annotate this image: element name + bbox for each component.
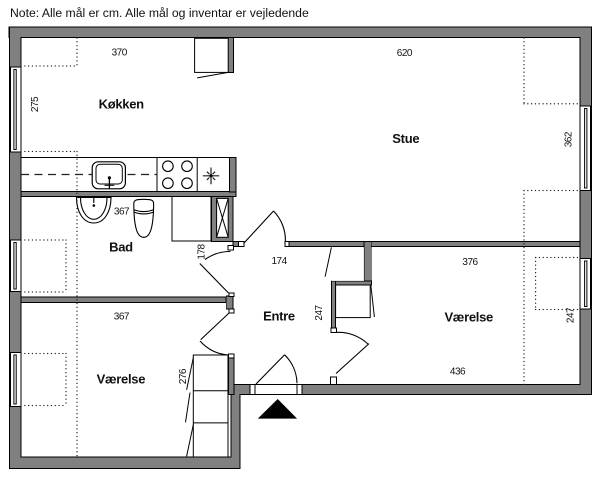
svg-text:362: 362 — [564, 131, 575, 147]
svg-text:Bad: Bad — [109, 240, 133, 255]
svg-text:Køkken: Køkken — [99, 97, 145, 112]
svg-text:Note: Alle mål er cm. Alle mål: Note: Alle mål er cm. Alle mål og invent… — [10, 6, 309, 20]
svg-text:367: 367 — [114, 206, 130, 217]
svg-text:Værelse: Værelse — [444, 310, 493, 325]
svg-text:376: 376 — [462, 257, 478, 268]
svg-text:275: 275 — [30, 96, 41, 112]
svg-text:247: 247 — [314, 304, 325, 320]
svg-text:Stue: Stue — [392, 131, 419, 146]
svg-text:174: 174 — [272, 256, 288, 267]
svg-text:178: 178 — [196, 243, 207, 259]
svg-text:436: 436 — [450, 367, 466, 378]
svg-text:620: 620 — [397, 48, 413, 59]
svg-text:247: 247 — [566, 307, 577, 323]
svg-text:Entre: Entre — [263, 309, 295, 324]
svg-text:Værelse: Værelse — [97, 371, 146, 386]
svg-text:370: 370 — [112, 47, 128, 58]
svg-text:276: 276 — [178, 368, 189, 384]
svg-text:367: 367 — [114, 311, 130, 322]
